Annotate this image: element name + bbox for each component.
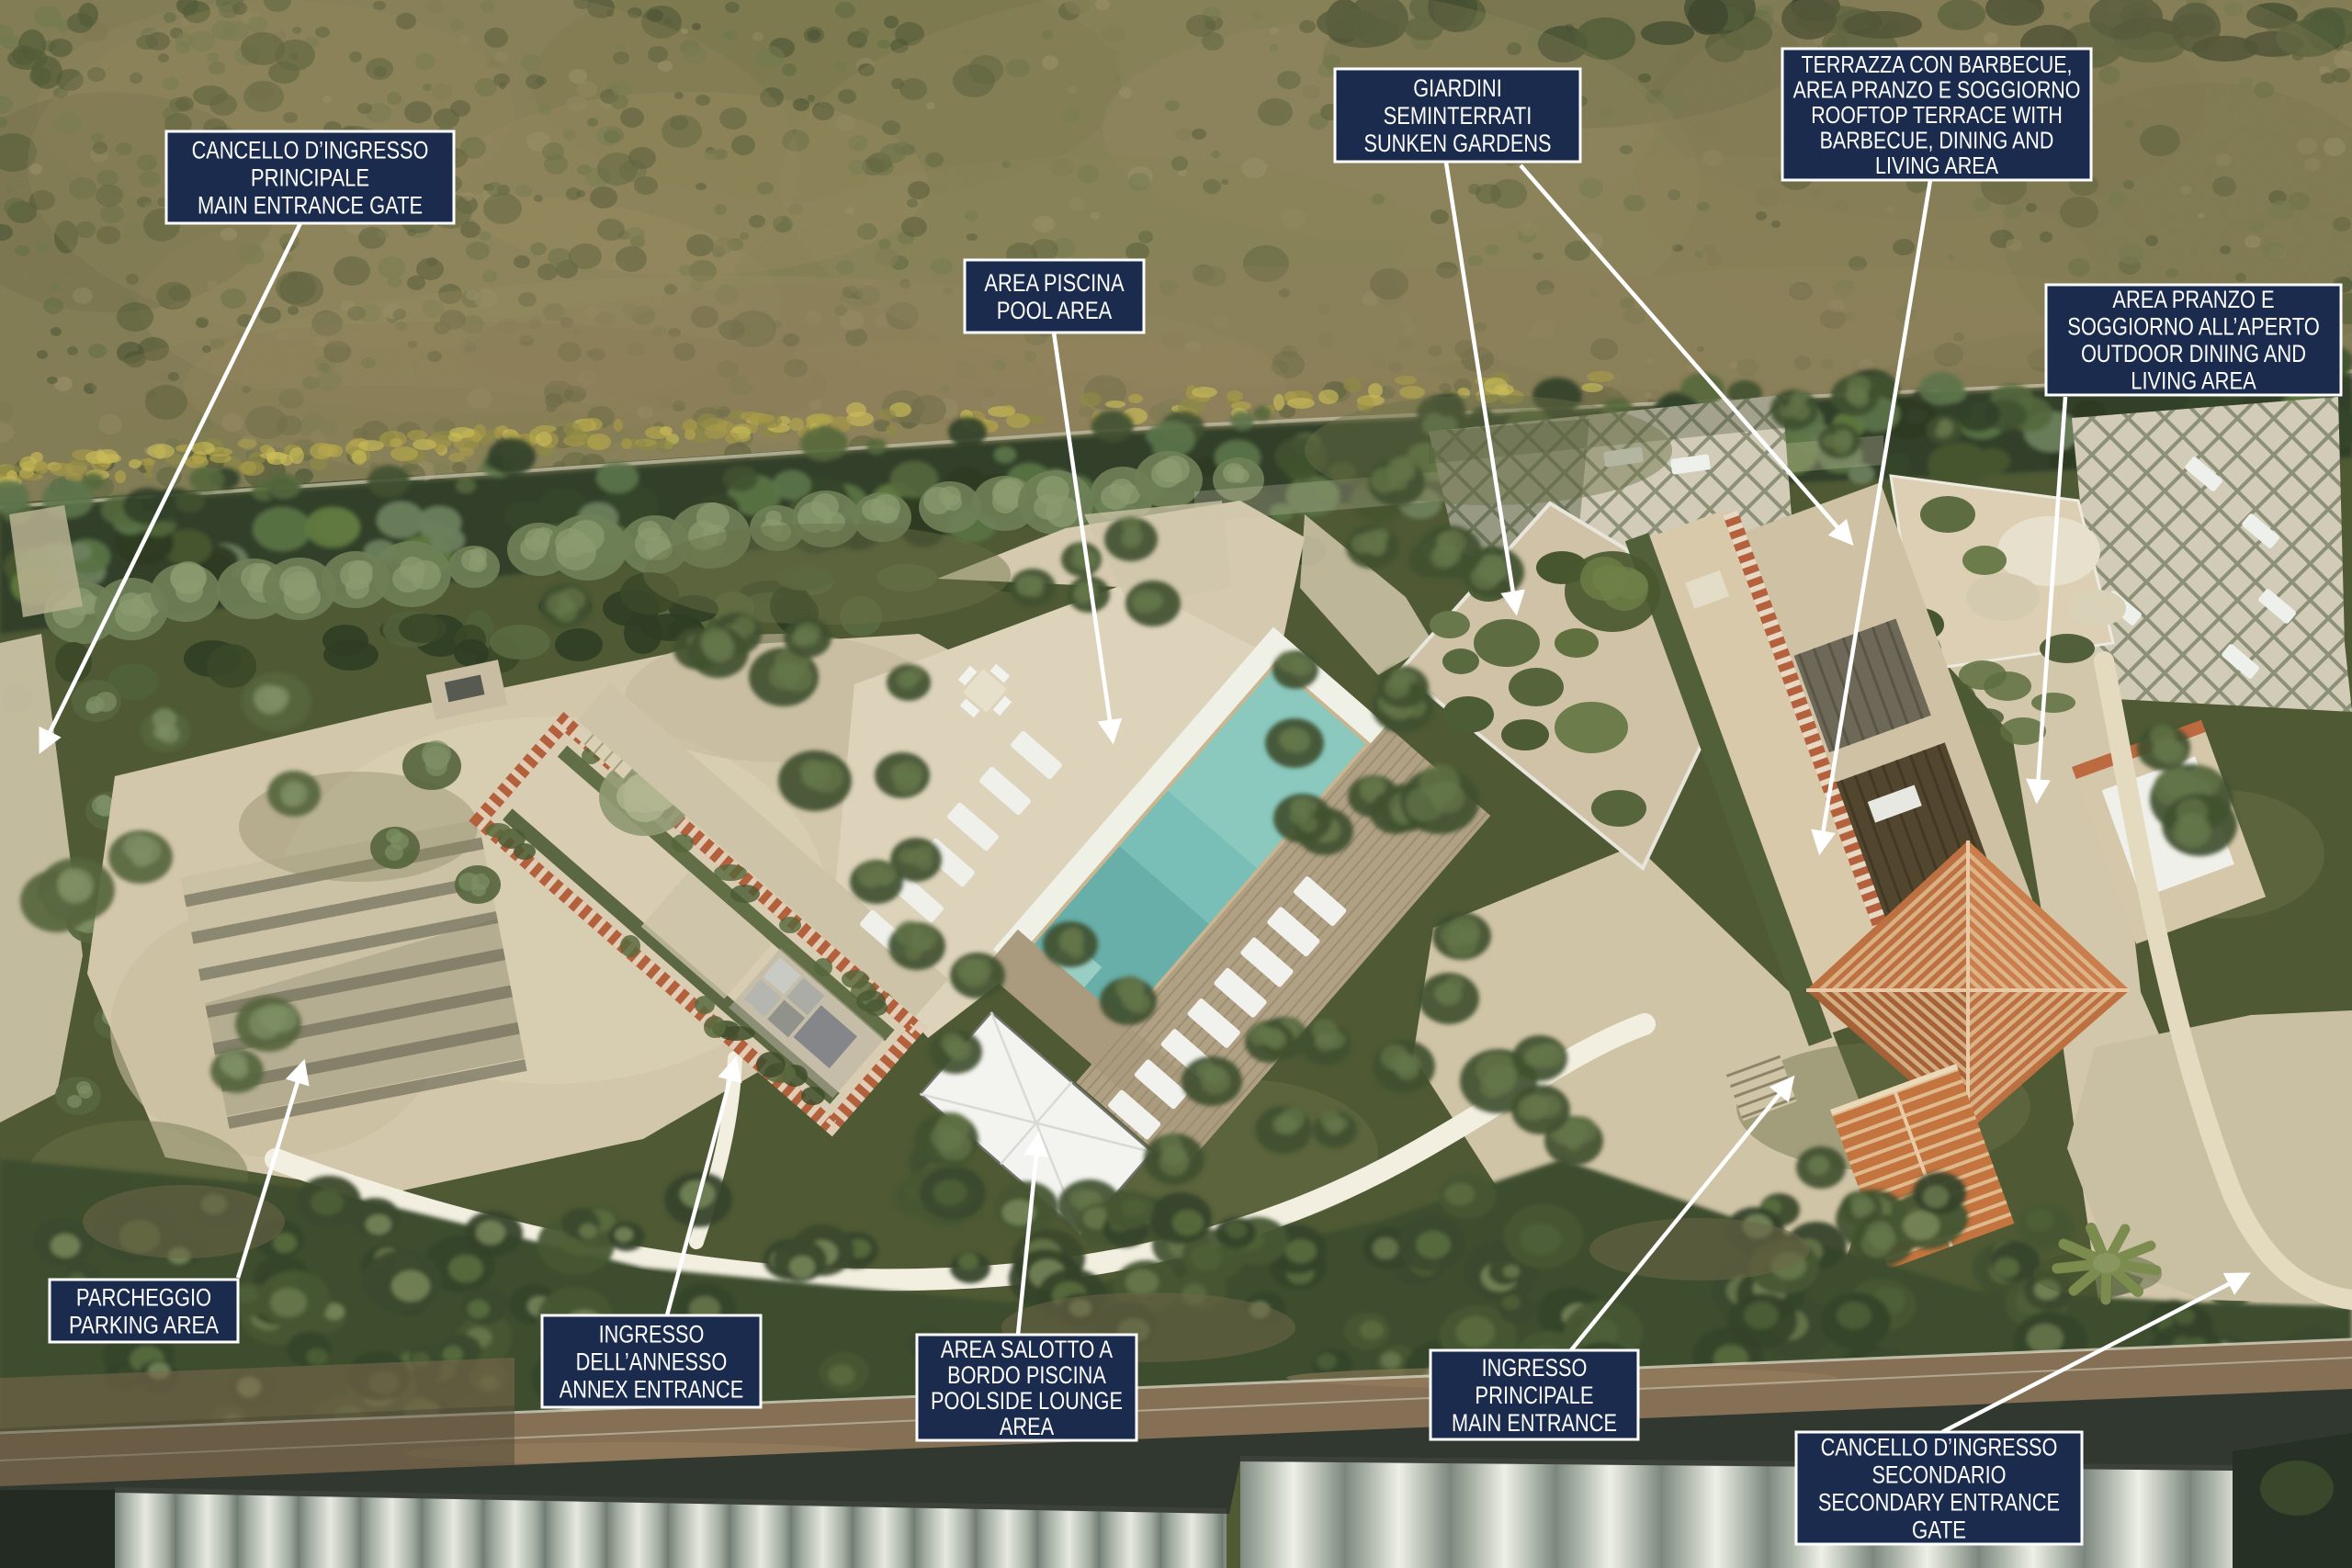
svg-text:LIVING AREA: LIVING AREA xyxy=(1875,152,1998,179)
svg-text:INGRESSO: INGRESSO xyxy=(1482,1354,1588,1382)
svg-text:ANNEX ENTRANCE: ANNEX ENTRANCE xyxy=(560,1376,743,1404)
svg-text:SECONDARIO: SECONDARIO xyxy=(1871,1461,2006,1489)
svg-text:SEMINTERRATI: SEMINTERRATI xyxy=(1384,102,1532,130)
svg-text:AREA PISCINA: AREA PISCINA xyxy=(984,269,1124,297)
svg-text:PARKING AREA: PARKING AREA xyxy=(69,1312,219,1339)
svg-text:AREA SALOTTO A: AREA SALOTTO A xyxy=(941,1336,1113,1363)
svg-text:PRINCIPALE: PRINCIPALE xyxy=(251,164,369,192)
svg-text:SECONDARY ENTRANCE: SECONDARY ENTRANCE xyxy=(1818,1489,2060,1517)
svg-text:INGRESSO: INGRESSO xyxy=(599,1321,705,1348)
svg-text:GIARDINI: GIARDINI xyxy=(1413,74,1502,102)
svg-text:AREA PRANZO E: AREA PRANZO E xyxy=(2112,286,2274,313)
svg-text:SUNKEN GARDENS: SUNKEN GARDENS xyxy=(1364,130,1552,157)
svg-text:PRINCIPALE: PRINCIPALE xyxy=(1475,1382,1593,1409)
svg-text:LIVING AREA: LIVING AREA xyxy=(2131,367,2256,395)
svg-text:BARBECUE, DINING AND: BARBECUE, DINING AND xyxy=(1820,126,2054,153)
svg-text:GATE: GATE xyxy=(1912,1517,1966,1544)
svg-text:TERRAZZA CON BARBECUE,: TERRAZZA CON BARBECUE, xyxy=(1802,51,2073,78)
svg-text:POOLSIDE LOUNGE: POOLSIDE LOUNGE xyxy=(931,1387,1123,1415)
svg-text:MAIN ENTRANCE: MAIN ENTRANCE xyxy=(1452,1409,1617,1437)
svg-text:POOL AREA: POOL AREA xyxy=(997,297,1113,324)
svg-text:MAIN ENTRANCE GATE: MAIN ENTRANCE GATE xyxy=(198,192,423,220)
svg-text:ROOFTOP TERRACE WITH: ROOFTOP TERRACE WITH xyxy=(1811,101,2063,129)
svg-text:AREA PRANZO E SOGGIORNO: AREA PRANZO E SOGGIORNO xyxy=(1793,75,2081,103)
svg-text:DELL’ANNESSO: DELL’ANNESSO xyxy=(576,1348,728,1376)
svg-text:AREA: AREA xyxy=(1000,1413,1054,1440)
svg-text:PARCHEGGIO: PARCHEGGIO xyxy=(76,1284,211,1312)
svg-text:BORDO PISCINA: BORDO PISCINA xyxy=(947,1361,1106,1389)
svg-text:SOGGIORNO ALL’APERTO: SOGGIORNO ALL’APERTO xyxy=(2067,313,2320,341)
svg-text:OUTDOOR DINING AND: OUTDOOR DINING AND xyxy=(2081,340,2306,367)
svg-text:CANCELLO D’INGRESSO: CANCELLO D’INGRESSO xyxy=(1821,1434,2058,1461)
svg-text:CANCELLO D’INGRESSO: CANCELLO D’INGRESSO xyxy=(192,137,429,164)
